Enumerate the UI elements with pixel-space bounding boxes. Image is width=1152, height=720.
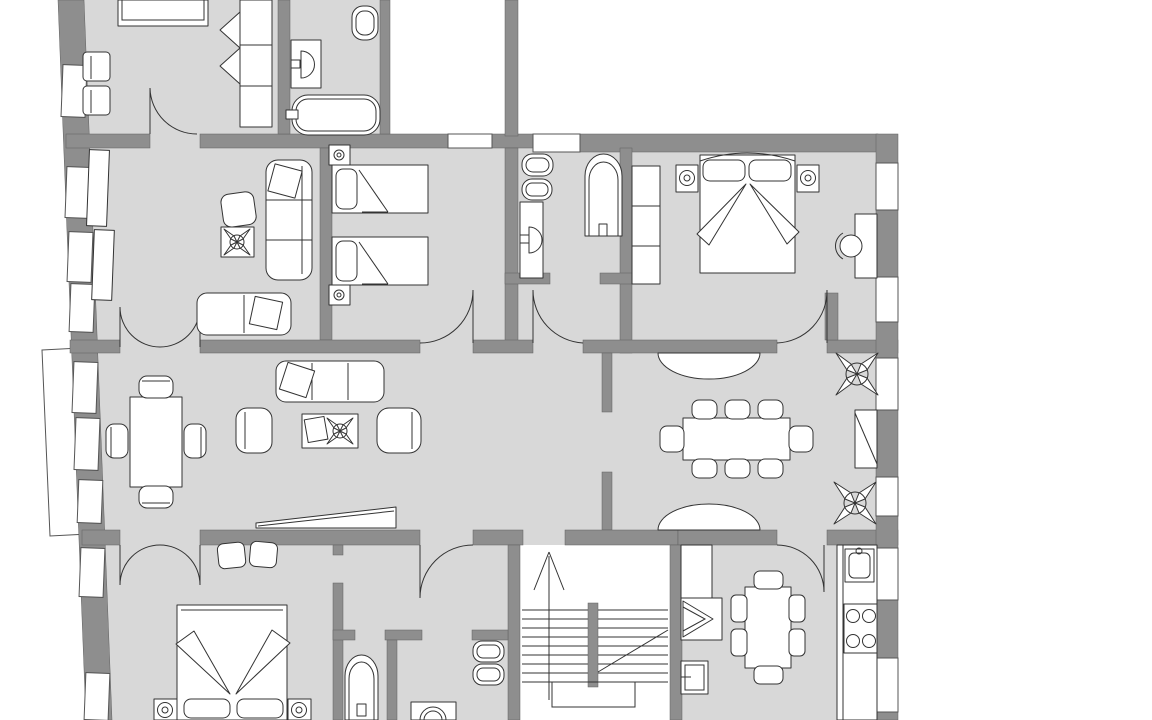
wall-v-bath-lightwell xyxy=(380,0,390,134)
wall-v-bedsouth-stub xyxy=(333,545,343,555)
room-laundry-wc xyxy=(397,640,508,720)
wall-v-dining-stub-n xyxy=(602,353,612,412)
wall-bath3-c xyxy=(472,630,508,640)
floor-plan-screenshot: { "meta": { "title": "apartment-floor-pl… xyxy=(0,0,1152,720)
room-stairwell xyxy=(520,545,670,720)
wall-v-stair-west xyxy=(508,545,520,720)
wall-h2-a xyxy=(70,340,120,353)
window-west-5 xyxy=(72,362,98,414)
wall-bath3-b xyxy=(385,630,422,640)
window-east-5 xyxy=(876,548,898,600)
room-shower-room xyxy=(343,640,387,720)
room-dining-room xyxy=(612,353,876,530)
window-east-2 xyxy=(876,277,898,322)
wall-bath3-a xyxy=(333,630,355,640)
wall-h1-b xyxy=(200,134,448,148)
wall-h3-c xyxy=(473,530,523,545)
room-hallway xyxy=(343,545,508,630)
window-east-6 xyxy=(876,658,898,712)
room-master-bedroom xyxy=(632,152,876,340)
wall-v-bedsouth-hall xyxy=(333,583,343,720)
room-light-well xyxy=(390,0,505,134)
room-bathroom-central xyxy=(518,148,620,344)
room-twin-bedroom xyxy=(332,148,505,340)
exterior-wall-east xyxy=(876,134,898,720)
wall-h3-a xyxy=(82,530,120,545)
window-east-1 xyxy=(876,163,898,210)
wall-h1-a xyxy=(66,134,150,148)
wall-v-stair-east xyxy=(670,545,682,720)
room-bedroom-northwest xyxy=(84,0,278,134)
room-bathroom-north xyxy=(290,0,380,134)
room-living-room xyxy=(95,353,600,530)
wall-v-shower-wc xyxy=(387,640,397,720)
floor-plan xyxy=(0,0,1152,720)
wall-h3-d xyxy=(565,530,678,545)
wall-v-lightwell-east xyxy=(505,0,518,136)
window-lightwell-1 xyxy=(448,134,492,148)
wall-v-twin-bath2 xyxy=(505,148,518,345)
room-bedroom-south xyxy=(100,545,333,720)
floor-plan-page xyxy=(0,0,1152,720)
wall-v-dining-stub-s xyxy=(602,472,612,530)
room-sitting-room xyxy=(88,148,318,340)
wall-h2-b xyxy=(200,340,420,353)
wall-h3-e xyxy=(678,530,777,545)
window-east-3 xyxy=(876,358,898,410)
wall-v-sitting-twin xyxy=(320,148,332,340)
window-east-4 xyxy=(876,477,898,516)
room-kitchen xyxy=(682,545,876,720)
